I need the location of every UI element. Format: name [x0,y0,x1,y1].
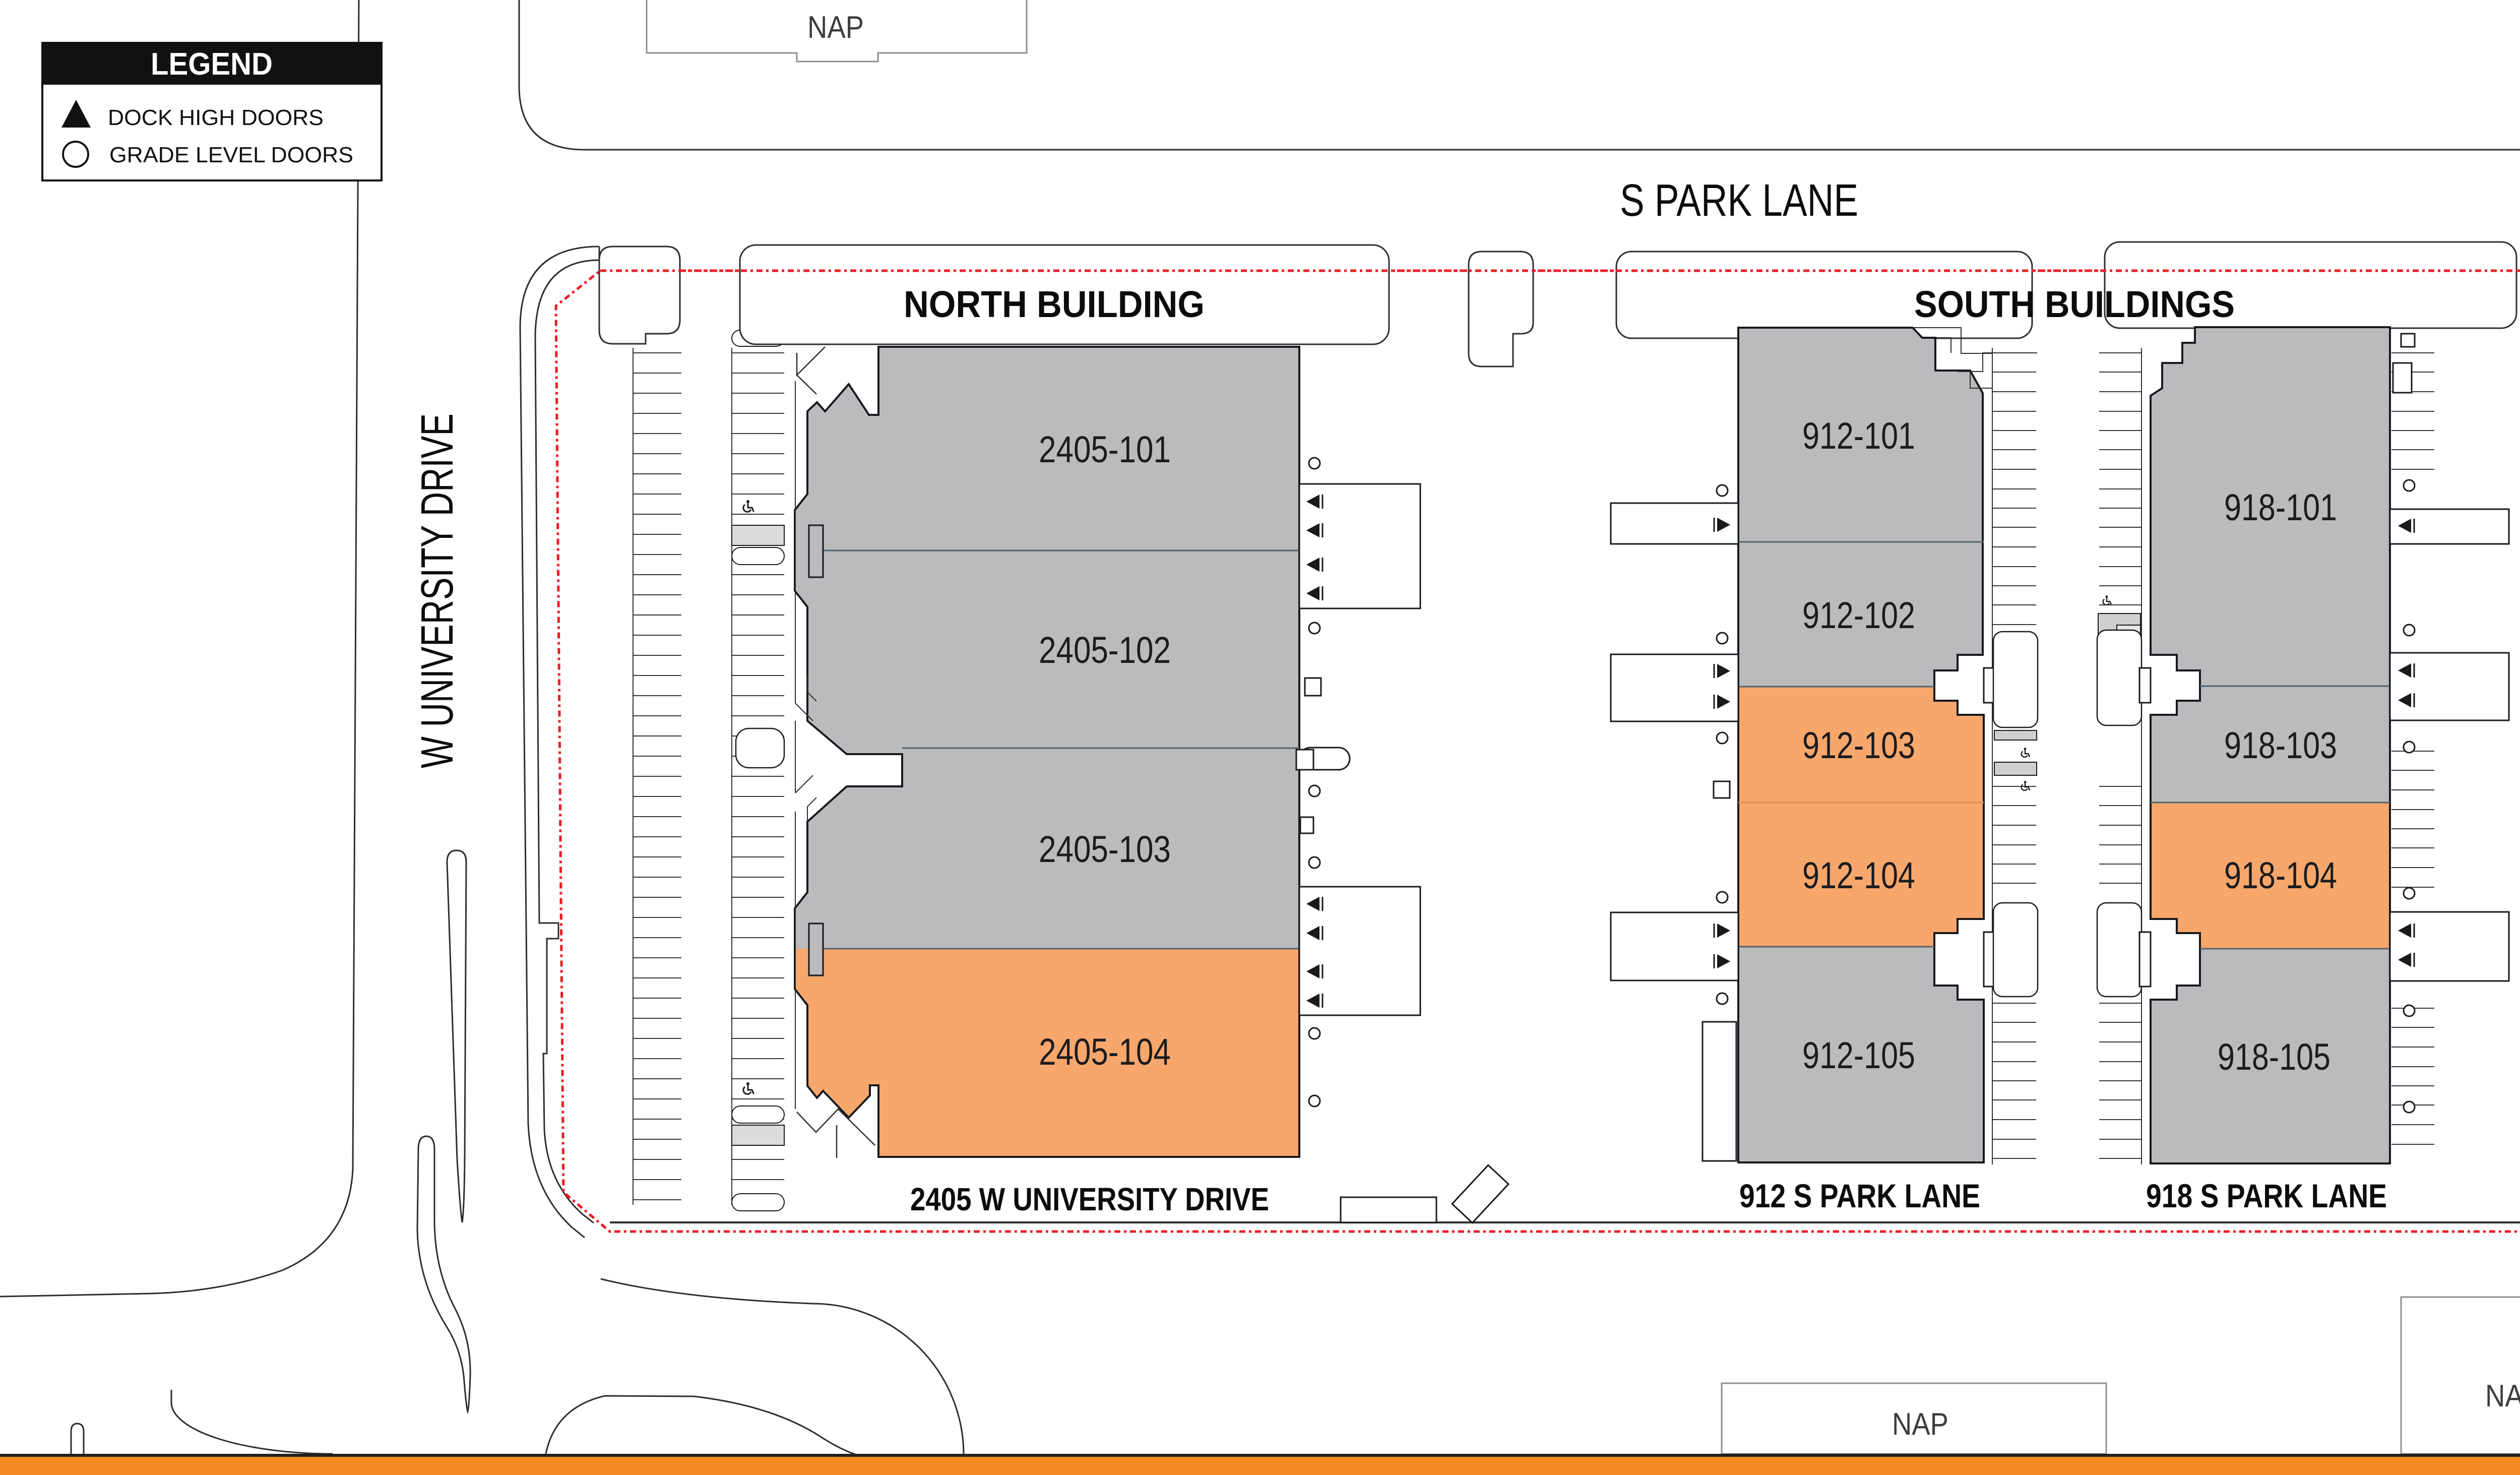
svg-text:918-103: 918-103 [2224,724,2337,766]
svg-text:LEGEND: LEGEND [151,47,273,82]
svg-text:2405-104: 2405-104 [1039,1031,1171,1073]
svg-text:NAP: NAP [1892,1407,1948,1442]
svg-text:2405 W UNIVERSITY DRIVE: 2405 W UNIVERSITY DRIVE [910,1181,1269,1217]
svg-text:918-101: 918-101 [2224,486,2337,528]
svg-text:2405-101: 2405-101 [1039,428,1171,470]
svg-text:918-104: 918-104 [2224,854,2337,896]
svg-text:912-101: 912-101 [1802,415,1915,457]
svg-text:912-105: 912-105 [1802,1034,1915,1076]
svg-text:912-104: 912-104 [1802,854,1915,896]
svg-text:2405-103: 2405-103 [1039,828,1171,870]
svg-text:918 S PARK LANE: 918 S PARK LANE [2146,1177,2387,1214]
svg-text:GRADE LEVEL DOORS: GRADE LEVEL DOORS [109,143,353,167]
svg-text:NORTH BUILDING: NORTH BUILDING [904,283,1205,325]
svg-text:912-103: 912-103 [1802,724,1915,766]
svg-text:S PARK LANE: S PARK LANE [1620,175,1858,226]
svg-text:912-102: 912-102 [1802,594,1915,636]
svg-text:2405-102: 2405-102 [1039,629,1171,671]
svg-text:918-105: 918-105 [2218,1036,2330,1078]
svg-text:912 S PARK LANE: 912 S PARK LANE [1739,1177,1980,1214]
svg-text:NAP: NAP [2485,1379,2520,1413]
svg-text:DOCK HIGH DOORS: DOCK HIGH DOORS [108,105,324,130]
svg-text:NAP: NAP [807,10,864,45]
svg-text:W UNIVERSITY DRIVE: W UNIVERSITY DRIVE [412,413,463,768]
svg-text:SOUTH BUILDINGS: SOUTH BUILDINGS [1914,283,2235,325]
